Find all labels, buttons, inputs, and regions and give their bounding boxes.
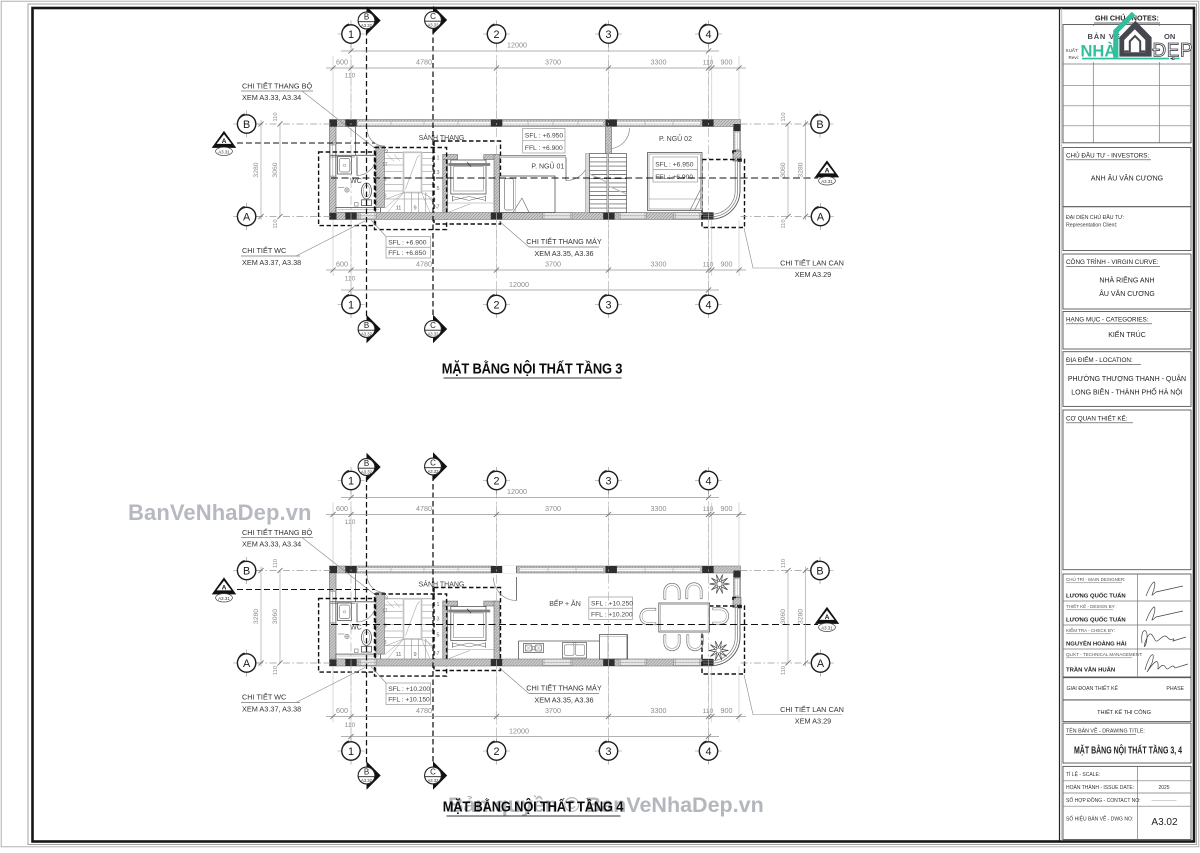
- svg-text:A: A: [243, 658, 251, 670]
- svg-text:1: 1: [348, 299, 354, 311]
- svg-text:CHI TIẾT WC: CHI TIẾT WC: [242, 692, 286, 702]
- svg-text:4780: 4780: [416, 260, 432, 269]
- svg-text:3700: 3700: [545, 58, 561, 67]
- svg-text:SFL : +6.900: SFL : +6.900: [388, 239, 427, 246]
- svg-text:5: 5: [437, 633, 440, 639]
- svg-text:110: 110: [703, 506, 714, 513]
- svg-text:P. NGỦ 01: P. NGỦ 01: [531, 162, 564, 171]
- svg-text:11: 11: [396, 205, 402, 211]
- svg-text:4: 4: [705, 475, 711, 487]
- svg-text:TỈ LỆ - SCALE:: TỈ LỆ - SCALE:: [1066, 770, 1100, 778]
- svg-text:TÊN BẢN VẼ - DRAWING TITLE:: TÊN BẢN VẼ - DRAWING TITLE:: [1066, 727, 1145, 735]
- svg-text:9: 9: [385, 595, 388, 601]
- svg-text:B: B: [364, 321, 369, 330]
- svg-text:3280: 3280: [798, 609, 805, 624]
- svg-text:CÔNG TRÌNH - VIRGIN CURVE:: CÔNG TRÌNH - VIRGIN CURVE:: [1066, 257, 1159, 266]
- svg-text:5: 5: [437, 186, 440, 192]
- svg-text:3: 3: [605, 299, 611, 311]
- svg-text:CHI TIẾT THANG BỘ: CHI TIẾT THANG BỘ: [242, 81, 312, 91]
- svg-text:C: C: [430, 768, 436, 777]
- svg-text:4780: 4780: [416, 706, 432, 715]
- svg-text:A3.02: A3.02: [1151, 817, 1178, 828]
- svg-text:110: 110: [781, 559, 787, 568]
- svg-text:3: 3: [605, 475, 611, 487]
- svg-text:TRẦN VĂN HUÂN: TRẦN VĂN HUÂN: [1066, 667, 1115, 674]
- svg-text:9: 9: [413, 652, 416, 658]
- svg-text:Revi:: Revi:: [1069, 55, 1079, 60]
- svg-text:11: 11: [396, 652, 402, 658]
- svg-text:A3.32: A3.32: [428, 469, 440, 474]
- svg-text:A: A: [243, 211, 251, 223]
- svg-text:3060: 3060: [272, 162, 279, 177]
- svg-text:B: B: [243, 565, 250, 577]
- svg-text:1: 1: [348, 475, 354, 487]
- svg-text:XEM A3.35, A3.36: XEM A3.35, A3.36: [534, 696, 593, 705]
- svg-text:12000: 12000: [509, 280, 529, 289]
- svg-text:QL/KT - TECHNICAL MANAGEMENT:: QL/KT - TECHNICAL MANAGEMENT:: [1066, 652, 1142, 657]
- svg-text:A: A: [222, 138, 227, 145]
- svg-text:A3.32: A3.32: [361, 332, 373, 337]
- svg-text:1: 1: [437, 156, 440, 162]
- svg-text:XUẤT: XUẤT: [1066, 47, 1078, 53]
- svg-text:3: 3: [384, 640, 387, 646]
- svg-text:XEM A3.33, A3.34: XEM A3.33, A3.34: [242, 93, 301, 102]
- svg-text:CHI TIẾT THANG MÁY: CHI TIẾT THANG MÁY: [526, 236, 602, 246]
- svg-text:7: 7: [437, 651, 440, 657]
- svg-text:XEM A3.37, A3.38: XEM A3.37, A3.38: [242, 705, 301, 714]
- svg-text:3280: 3280: [798, 162, 805, 177]
- svg-text:9: 9: [385, 149, 388, 155]
- svg-text:3: 3: [384, 194, 387, 200]
- svg-text:12000: 12000: [507, 487, 527, 496]
- svg-text:110: 110: [781, 219, 787, 228]
- svg-text:600: 600: [336, 58, 348, 67]
- svg-text:LƯƠNG QUỐC TUẤN: LƯƠNG QUỐC TUẤN: [1066, 593, 1126, 600]
- svg-text:B: B: [364, 768, 369, 777]
- svg-text:C: C: [430, 459, 436, 468]
- svg-text:3: 3: [605, 746, 611, 758]
- svg-text:A3.32: A3.32: [361, 470, 373, 475]
- svg-text:C: C: [430, 12, 436, 21]
- svg-text:P. NGỦ 02: P. NGỦ 02: [659, 134, 692, 143]
- svg-text:MẶT BẰNG NỘI THẤT TẦNG 4: MẶT BẰNG NỘI THẤT TẦNG 4: [443, 796, 624, 814]
- svg-text:MẶT BẰNG NỘI THẤT TẦNG 3, 4: MẶT BẰNG NỘI THẤT TẦNG 3, 4: [1074, 743, 1182, 756]
- svg-text:1: 1: [437, 602, 440, 608]
- svg-text:600: 600: [336, 260, 348, 269]
- svg-text:1: 1: [348, 29, 354, 41]
- svg-text:ÂU VĂN CƯƠNG: ÂU VĂN CƯƠNG: [1099, 289, 1155, 298]
- svg-text:A3.32: A3.32: [428, 778, 440, 783]
- svg-text:A3.31: A3.31: [821, 625, 833, 630]
- svg-text:A3.31: A3.31: [218, 149, 230, 154]
- svg-text:3300: 3300: [651, 260, 667, 269]
- svg-text:ĐỊA ĐIỂM - LOCATION:: ĐỊA ĐIỂM - LOCATION:: [1066, 355, 1133, 364]
- svg-text:900: 900: [721, 260, 733, 269]
- svg-text:SFL : +10.250: SFL : +10.250: [591, 600, 633, 607]
- svg-text:CHI TIẾT LAN CAN: CHI TIẾT LAN CAN: [780, 258, 844, 268]
- svg-text:110: 110: [703, 262, 714, 269]
- svg-text:A3.31: A3.31: [218, 596, 230, 601]
- svg-text:3060: 3060: [780, 609, 787, 624]
- svg-text:12000: 12000: [509, 727, 529, 736]
- svg-text:THIẾT KẾ - DESIGN BY:: THIẾT KẾ - DESIGN BY:: [1066, 603, 1116, 609]
- svg-text:SFL : +6.950: SFL : +6.950: [655, 162, 694, 169]
- svg-text:110: 110: [345, 276, 356, 283]
- svg-text:3700: 3700: [545, 706, 561, 715]
- svg-text:12000: 12000: [507, 41, 527, 50]
- svg-text:C: C: [430, 321, 436, 330]
- svg-text:SFL : +10.200: SFL : +10.200: [388, 686, 430, 693]
- svg-text:110: 110: [781, 666, 787, 675]
- svg-text:HOÀN THÀNH - ISSUE DATE:: HOÀN THÀNH - ISSUE DATE:: [1066, 784, 1134, 791]
- svg-text:3300: 3300: [651, 58, 667, 67]
- svg-text:CHI TIẾT WC: CHI TIẾT WC: [242, 245, 286, 255]
- svg-text:SỐ HỢP ĐỒNG - CONTACT NO:: SỐ HỢP ĐỒNG - CONTACT NO:: [1066, 797, 1141, 804]
- svg-text:900: 900: [721, 706, 733, 715]
- svg-text:XEM A3.29: XEM A3.29: [795, 717, 832, 726]
- svg-text:2: 2: [493, 299, 499, 311]
- svg-text:7: 7: [437, 204, 440, 210]
- svg-text:THIẾT KẾ THI CÔNG: THIẾT KẾ THI CÔNG: [1097, 709, 1151, 716]
- svg-text:1: 1: [348, 746, 354, 758]
- svg-text:2025: 2025: [1158, 785, 1169, 791]
- svg-text:B: B: [816, 565, 823, 577]
- svg-text:17: 17: [382, 162, 388, 168]
- svg-text:3300: 3300: [651, 706, 667, 715]
- svg-text:B: B: [816, 119, 823, 131]
- svg-text:110: 110: [703, 708, 714, 715]
- svg-text:3060: 3060: [780, 162, 787, 177]
- svg-text:A: A: [825, 614, 830, 621]
- svg-text:110: 110: [273, 666, 279, 675]
- svg-text:900: 900: [721, 58, 733, 67]
- svg-text:ĐẠI DIỆN CHỦ ĐẦU TƯ:: ĐẠI DIỆN CHỦ ĐẦU TƯ:: [1066, 213, 1124, 221]
- svg-text:NGUYỄN HOÀNG HẢI: NGUYỄN HOÀNG HẢI: [1066, 641, 1127, 648]
- svg-text:17: 17: [382, 609, 388, 615]
- svg-text:110: 110: [781, 112, 787, 121]
- svg-text:FFL : +10.200: FFL : +10.200: [591, 612, 633, 619]
- svg-text:A3.32: A3.32: [428, 23, 440, 28]
- svg-text:MẶT BẰNG NỘI THẤT TẦNG 3: MẶT BẰNG NỘI THẤT TẦNG 3: [442, 358, 623, 376]
- svg-text:110: 110: [703, 60, 714, 67]
- svg-text:CHI TIẾT LAN CAN: CHI TIẾT LAN CAN: [780, 704, 844, 714]
- svg-text:GIAI ĐOẠN THIẾT KẾ: GIAI ĐOẠN THIẾT KẾ: [1067, 685, 1119, 692]
- svg-text:4: 4: [705, 299, 711, 311]
- svg-text:B: B: [364, 459, 369, 468]
- svg-text:A: A: [817, 211, 825, 223]
- svg-text:FFL : +6.900: FFL : +6.900: [525, 145, 563, 152]
- svg-text:A3.32: A3.32: [361, 23, 373, 28]
- svg-text:LƯƠNG QUỐC TUẤN: LƯƠNG QUỐC TUẤN: [1066, 617, 1126, 624]
- svg-text:ANH ÂU VĂN CƯƠNG: ANH ÂU VĂN CƯƠNG: [1091, 174, 1163, 183]
- svg-text:110: 110: [273, 219, 279, 228]
- svg-text:3: 3: [437, 170, 440, 176]
- svg-text:110: 110: [345, 722, 356, 729]
- svg-text:A3.32: A3.32: [361, 778, 373, 783]
- svg-text:WC: WC: [350, 625, 362, 632]
- svg-text:BanVeNhaDep.vn: BanVeNhaDep.vn: [128, 500, 312, 525]
- svg-text:WC: WC: [350, 178, 362, 185]
- svg-text:PHƯỜNG THƯỢNG THANH - QUẬN: PHƯỜNG THƯỢNG THANH - QUẬN: [1068, 374, 1186, 383]
- svg-text:4: 4: [705, 746, 711, 758]
- svg-text:2: 2: [493, 29, 499, 41]
- svg-text:110: 110: [345, 519, 356, 526]
- svg-text:KIỂM TRA - CHECK BY:: KIỂM TRA - CHECK BY:: [1066, 627, 1115, 633]
- svg-text:A: A: [222, 584, 227, 591]
- svg-text:FFL : +6.850: FFL : +6.850: [388, 250, 426, 257]
- svg-text:110: 110: [345, 73, 356, 80]
- svg-text:A: A: [817, 658, 825, 670]
- svg-text:9: 9: [413, 205, 416, 211]
- svg-text:B: B: [364, 13, 369, 22]
- svg-text:110: 110: [273, 112, 279, 121]
- svg-text:3: 3: [605, 29, 611, 41]
- svg-text:SỐ HIỆU BẢN VẼ - DWG NO:: SỐ HIỆU BẢN VẼ - DWG NO:: [1066, 815, 1133, 823]
- svg-text:CHI TIẾT THANG MÁY: CHI TIẾT THANG MÁY: [526, 683, 602, 693]
- svg-text:3280: 3280: [253, 162, 260, 177]
- svg-text:110: 110: [273, 559, 279, 568]
- svg-text:FFL : +10.150: FFL : +10.150: [388, 697, 430, 704]
- svg-text:900: 900: [721, 504, 733, 513]
- svg-text:CHI TIẾT THANG BỘ: CHI TIẾT THANG BỘ: [242, 527, 312, 537]
- svg-text:Representation Client:: Representation Client:: [1066, 223, 1117, 229]
- svg-text:4: 4: [705, 29, 711, 41]
- svg-text:NHÀ RIÊNG ANH: NHÀ RIÊNG ANH: [1099, 276, 1154, 285]
- svg-text:4780: 4780: [416, 58, 432, 67]
- svg-text:600: 600: [336, 706, 348, 715]
- svg-text:SFL : +6.950: SFL : +6.950: [525, 133, 564, 140]
- svg-text:A3.31: A3.31: [821, 179, 833, 184]
- svg-text:XEM A3.33, A3.34: XEM A3.33, A3.34: [242, 540, 301, 549]
- svg-text:2: 2: [493, 746, 499, 758]
- svg-text:XEM A3.29: XEM A3.29: [795, 270, 832, 279]
- svg-text:3300: 3300: [651, 504, 667, 513]
- svg-text:3700: 3700: [545, 260, 561, 269]
- svg-text:3060: 3060: [272, 609, 279, 624]
- svg-text:3: 3: [437, 617, 440, 623]
- svg-text:4780: 4780: [416, 504, 432, 513]
- svg-text:CHỦ TRÌ - MAIN DESIGNER:: CHỦ TRÌ - MAIN DESIGNER:: [1066, 576, 1125, 582]
- svg-text:XEM A3.35, A3.36: XEM A3.35, A3.36: [534, 249, 593, 258]
- svg-text:A: A: [825, 167, 830, 174]
- svg-text:3280: 3280: [253, 609, 260, 624]
- svg-text:PHASE: PHASE: [1166, 686, 1184, 692]
- svg-text:3700: 3700: [545, 504, 561, 513]
- svg-text:A3.32: A3.32: [428, 332, 440, 337]
- svg-text:HẠNG MỤC - CATEGORIES:: HẠNG MỤC - CATEGORIES:: [1066, 317, 1149, 324]
- svg-text:XEM A3.37, A3.38: XEM A3.37, A3.38: [242, 258, 301, 267]
- svg-text:NHÀ: NHÀ: [1081, 42, 1117, 61]
- svg-text:2: 2: [493, 475, 499, 487]
- svg-text:—————: —————: [1152, 798, 1177, 804]
- svg-text:600: 600: [336, 504, 348, 513]
- svg-text:B: B: [243, 119, 250, 131]
